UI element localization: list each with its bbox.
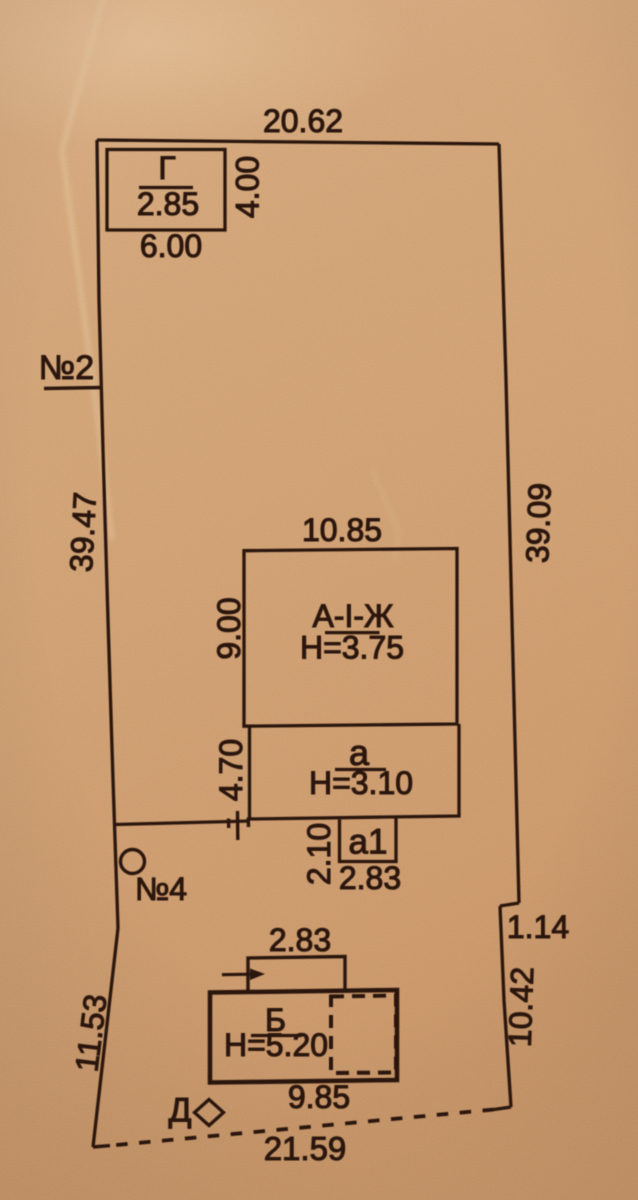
svg-text:2.10: 2.10	[301, 823, 337, 885]
svg-text:6.00: 6.00	[140, 228, 202, 264]
svg-text:Н=5.20: Н=5.20	[224, 1027, 328, 1063]
svg-text:№2: №2	[39, 349, 94, 387]
svg-text:10.42: 10.42	[502, 966, 541, 1047]
svg-text:2.83: 2.83	[339, 860, 401, 896]
svg-text:Н=3.75: Н=3.75	[300, 630, 404, 666]
svg-text:1.14: 1.14	[507, 909, 569, 945]
svg-text:39.47: 39.47	[63, 491, 103, 573]
svg-text:2.85: 2.85	[137, 186, 199, 222]
svg-text:9.00: 9.00	[211, 597, 247, 659]
svg-text:9.85: 9.85	[288, 1079, 350, 1115]
svg-text:4.70: 4.70	[213, 739, 249, 801]
svg-text:21.59: 21.59	[264, 1130, 347, 1167]
svg-text:39.09: 39.09	[519, 482, 558, 563]
svg-text:20.62: 20.62	[263, 103, 343, 139]
svg-text:Н=3.10: Н=3.10	[309, 765, 413, 801]
svg-text:Г: Г	[158, 150, 175, 186]
svg-text:№4: №4	[135, 871, 187, 907]
svg-text:а1: а1	[349, 823, 388, 862]
svg-text:4.00: 4.00	[230, 156, 266, 218]
svg-text:Д: Д	[168, 1092, 191, 1130]
svg-text:2.83: 2.83	[269, 922, 331, 958]
svg-text:10.85: 10.85	[302, 512, 382, 548]
